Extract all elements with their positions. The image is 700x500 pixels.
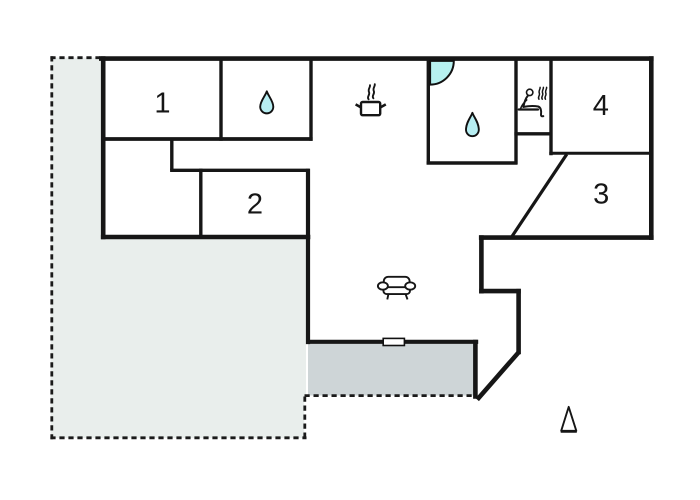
svg-text:2: 2 [247,188,263,220]
svg-text:1: 1 [154,87,170,119]
svg-text:4: 4 [593,90,609,122]
svg-text:3: 3 [593,178,609,210]
